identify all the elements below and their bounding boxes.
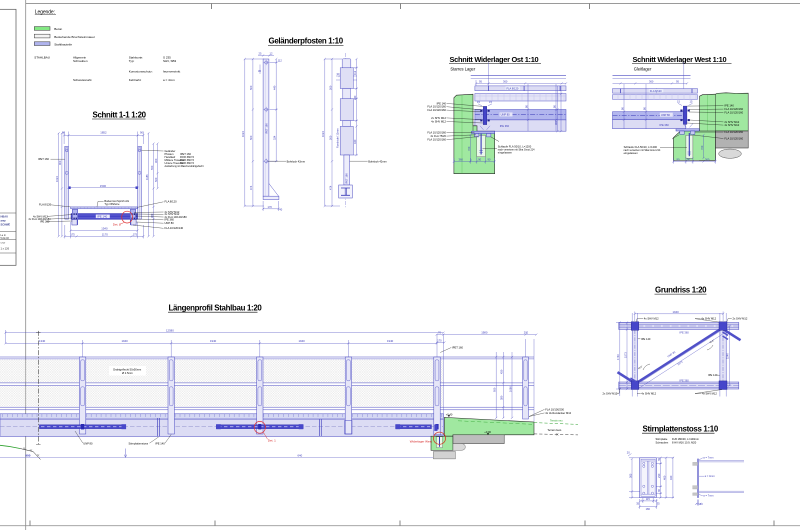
- svg-text:Starres Lager: Starres Lager: [450, 67, 475, 72]
- svg-text:Stirnplattenstoss: Stirnplattenstoss: [129, 441, 149, 445]
- svg-text:1940: 1940: [387, 339, 394, 343]
- svg-text:FLA 10/120/160: FLA 10/120/160: [724, 136, 743, 140]
- svg-text:Rundstahl 12mm: Rundstahl 12mm: [335, 128, 339, 148]
- svg-text:640: 640: [298, 453, 303, 457]
- svg-text:430: 430: [500, 369, 504, 374]
- svg-text:112: 112: [278, 59, 283, 63]
- svg-text:IPE 140: IPE 140: [724, 104, 734, 108]
- svg-text:IPE 360: IPE 360: [680, 379, 690, 383]
- svg-text:IPE 360: IPE 360: [165, 218, 175, 222]
- svg-text:Ø 2.5mm: Ø 2.5mm: [122, 371, 134, 375]
- svg-text:440: 440: [273, 85, 277, 90]
- svg-text:UNP 80: UNP 80: [165, 221, 175, 225]
- svg-text:Chef: Chef: [1, 243, 6, 245]
- svg-text:175: 175: [133, 232, 138, 236]
- svg-text:Schrauben: Schrauben: [656, 441, 669, 445]
- svg-text:a = 4mm: a = 4mm: [705, 474, 715, 478]
- svg-text:FLA 8/120: FLA 8/120: [650, 89, 662, 93]
- svg-text:8 HV M16 10.9, M20: 8 HV M16 10.9, M20: [672, 441, 697, 445]
- svg-text:FLB 180/20, L=440mm: FLB 180/20, L=440mm: [672, 437, 700, 441]
- svg-text:1060: 1060: [508, 386, 512, 392]
- svg-text:4x SHV M12: 4x SHV M12: [724, 123, 739, 127]
- svg-text:4x SHV M12: 4x SHV M12: [641, 391, 656, 395]
- svg-text:1940: 1940: [122, 339, 129, 343]
- svg-text:Schnitt 1-1 1:20: Schnitt 1-1 1:20: [93, 110, 147, 119]
- svg-text:Geländerpfosten 1:10: Geländerpfosten 1:10: [269, 37, 344, 46]
- svg-text:1 x 126: 1 x 126: [1, 247, 10, 251]
- svg-text:1940: 1940: [673, 310, 680, 314]
- svg-text:1540: 1540: [726, 353, 730, 359]
- svg-text:Terrain best.: Terrain best.: [547, 428, 562, 432]
- svg-text:700: 700: [700, 145, 704, 150]
- svg-text:a = 4mm: a = 4mm: [163, 78, 175, 82]
- svg-text:1185: 1185: [145, 174, 149, 180]
- svg-text:400: 400: [662, 475, 666, 480]
- svg-text:112: 112: [353, 70, 357, 75]
- svg-text:Typ Offshore: Typ Offshore: [104, 202, 120, 206]
- svg-text:IPE 140: IPE 140: [641, 337, 651, 341]
- svg-text:Stahlbauteile: Stahlbauteile: [54, 42, 72, 46]
- svg-text:380: 380: [500, 395, 504, 400]
- svg-text:Schweissnaht: Schweissnaht: [73, 78, 92, 82]
- svg-text:a = 7mm: a = 7mm: [703, 494, 713, 498]
- svg-text:Det. 1: Det. 1: [268, 439, 276, 443]
- svg-text:500: 500: [328, 85, 332, 90]
- svg-text:324: 324: [273, 135, 277, 140]
- svg-text:UNP 80: UNP 80: [501, 113, 511, 117]
- svg-text:Ausfachung mit Maschendrahtgef: Ausfachung mit Maschendrahtgeflecht: [165, 165, 204, 168]
- svg-text:4x Verbundanker M12: 4x Verbundanker M12: [545, 411, 571, 415]
- svg-text:230: 230: [657, 473, 661, 478]
- svg-text:1573: 1573: [623, 352, 627, 358]
- svg-text:500: 500: [154, 177, 158, 182]
- svg-text:Det. 2: Det. 2: [113, 223, 121, 227]
- svg-text:1940: 1940: [299, 339, 306, 343]
- svg-text:IPET 160: IPET 160: [344, 173, 348, 184]
- svg-text:Bestehende Bruchsteinmauer: Bestehende Bruchsteinmauer: [54, 35, 95, 39]
- svg-text:115: 115: [646, 497, 651, 501]
- svg-text:Längenprofil Stahlbau 1:20: Längenprofil Stahlbau 1:20: [169, 303, 263, 312]
- svg-text:Schrauben: Schrauben: [73, 59, 88, 63]
- svg-text:550: 550: [150, 165, 154, 170]
- svg-text:FLA 10/120/160: FLA 10/120/160: [427, 105, 446, 109]
- svg-text:UNP 80: UNP 80: [83, 441, 93, 445]
- svg-text:175: 175: [70, 232, 75, 236]
- svg-text:2x SHV M12: 2x SHV M12: [733, 317, 748, 321]
- svg-text:1024: 1024: [55, 176, 59, 182]
- svg-text:Beton: Beton: [54, 27, 62, 31]
- svg-text:1940: 1940: [210, 339, 217, 343]
- svg-text:360: 360: [649, 79, 654, 83]
- svg-text:UNP 80: UNP 80: [661, 113, 671, 117]
- svg-text:ROR 38/2.5: ROR 38/2.5: [180, 161, 194, 165]
- svg-text:Typ:: Typ:: [129, 59, 135, 63]
- svg-text:IPET 160: IPET 160: [38, 157, 49, 161]
- svg-text:Grundriss 1:20: Grundriss 1:20: [655, 285, 707, 294]
- svg-text:360: 360: [150, 213, 154, 218]
- svg-text:IPET 160: IPET 160: [452, 346, 463, 350]
- svg-text:IPE 140: IPE 140: [97, 214, 107, 218]
- svg-text:FLA 8/120: FLA 8/120: [507, 86, 519, 90]
- svg-text:FLA 10/120/160: FLA 10/120/160: [724, 110, 743, 114]
- svg-text:IPE 140: IPE 140: [708, 373, 718, 377]
- svg-text:1340: 1340: [39, 339, 46, 343]
- svg-text:440: 440: [669, 475, 673, 480]
- svg-text:Bohrloch 42mm: Bohrloch 42mm: [287, 159, 306, 163]
- svg-text:IPE 140: IPE 140: [155, 441, 165, 445]
- svg-text:360: 360: [459, 158, 464, 162]
- svg-text:1740: 1740: [616, 354, 620, 360]
- svg-text:2x FLA 75/20: 2x FLA 75/20: [430, 134, 446, 138]
- svg-text:500: 500: [249, 135, 253, 140]
- svg-text:170: 170: [268, 205, 273, 209]
- svg-text:700: 700: [467, 146, 471, 151]
- svg-text:900: 900: [58, 160, 62, 165]
- svg-text:feuerverzinkt: feuerverzinkt: [163, 70, 180, 74]
- svg-text:FLA 10/120/140: FLA 10/120/140: [165, 226, 184, 230]
- svg-text:365: 365: [628, 473, 632, 478]
- svg-text:FLA 8/120: FLA 8/120: [165, 200, 178, 204]
- svg-text:Korrosionsschutz:: Korrosionsschutz:: [129, 70, 153, 74]
- svg-text:Bohrloch 42mm: Bohrloch 42mm: [368, 159, 387, 163]
- svg-text:IPE 360: IPE 360: [660, 123, 670, 127]
- svg-text:Terrain neu: Terrain neu: [550, 420, 563, 423]
- svg-text:Stirnplatte: Stirnplatte: [656, 437, 668, 441]
- svg-text:360: 360: [705, 158, 710, 162]
- svg-text:1170: 1170: [102, 232, 108, 236]
- svg-text:200: 200: [524, 331, 529, 335]
- svg-text:eingelassen: eingelassen: [498, 150, 513, 154]
- svg-text:1852: 1852: [100, 130, 107, 134]
- svg-text:Gleitlager: Gleitlager: [634, 67, 652, 72]
- svg-text:170: 170: [437, 339, 442, 343]
- svg-text:FLA 8/120: FLA 8/120: [39, 203, 52, 207]
- svg-text:1500: 1500: [100, 184, 107, 188]
- svg-text:1024: 1024: [321, 131, 325, 137]
- svg-text:SCHWE: SCHWE: [1, 223, 11, 227]
- svg-text:Kehlnaht:: Kehlnaht:: [129, 78, 142, 82]
- svg-text:Schnitt Widerlager Ost 1:10: Schnitt Widerlager Ost 1:10: [450, 55, 539, 64]
- svg-text:500: 500: [328, 135, 332, 140]
- svg-text:1980: 1980: [481, 331, 488, 335]
- svg-text:1540: 1540: [101, 227, 108, 231]
- svg-text:900: 900: [25, 454, 30, 458]
- svg-text:2x SHV M12: 2x SHV M12: [603, 391, 618, 395]
- svg-text:a = 7mm: a = 7mm: [703, 456, 713, 460]
- svg-text:IPE 360: IPE 360: [680, 331, 690, 335]
- svg-text:300: 300: [154, 158, 158, 163]
- svg-text:474: 474: [328, 185, 332, 190]
- svg-text:FLA 10/120/160: FLA 10/120/160: [724, 107, 743, 111]
- svg-text:FLA 10/120/160: FLA 10/120/160: [724, 130, 743, 134]
- svg-text:HBAU: HBAU: [1, 215, 9, 219]
- svg-text:FLA 10/100/200: FLA 10/100/200: [545, 407, 564, 411]
- svg-text:2x SHV M12: 2x SHV M12: [431, 116, 446, 120]
- svg-text:950: 950: [493, 387, 497, 392]
- svg-text:Stirnplattenstoss 1:10: Stirnplattenstoss 1:10: [643, 424, 719, 433]
- svg-text:FLA 10/120/160: FLA 10/120/160: [427, 108, 446, 112]
- svg-text:360: 360: [503, 79, 508, 83]
- svg-text:5-02-03: 5-02-03: [1, 237, 10, 240]
- svg-text:amy: amy: [1, 220, 7, 223]
- svg-text:440: 440: [353, 139, 357, 144]
- svg-text:474: 474: [249, 185, 253, 190]
- svg-text:IPET 160: IPET 160: [264, 123, 268, 134]
- svg-text:4x SHV M12: 4x SHV M12: [431, 119, 446, 123]
- svg-text:FLA 10/120/160: FLA 10/120/160: [427, 138, 446, 142]
- svg-text:Schnitt Widerlager West 1:10: Schnitt Widerlager West 1:10: [633, 55, 727, 64]
- svg-text:500: 500: [249, 85, 253, 90]
- svg-text:12580: 12580: [166, 328, 174, 332]
- svg-text:180: 180: [646, 507, 651, 511]
- svg-text:4x SHV M12: 4x SHV M12: [644, 317, 659, 321]
- svg-text:SHV, SB3: SHV, SB3: [163, 59, 177, 63]
- svg-text:Widerlager West: Widerlager West: [410, 439, 432, 443]
- svg-text:eingelassen: eingelassen: [624, 151, 639, 155]
- svg-text:1024: 1024: [241, 131, 245, 137]
- svg-text:IPE 360: IPE 360: [500, 124, 510, 128]
- svg-text:340: 340: [353, 95, 357, 100]
- svg-text:FLA 10/120/160: FLA 10/120/160: [427, 130, 446, 134]
- svg-text:360: 360: [554, 120, 558, 125]
- svg-text:STAHLBAU: STAHLBAU: [34, 55, 50, 59]
